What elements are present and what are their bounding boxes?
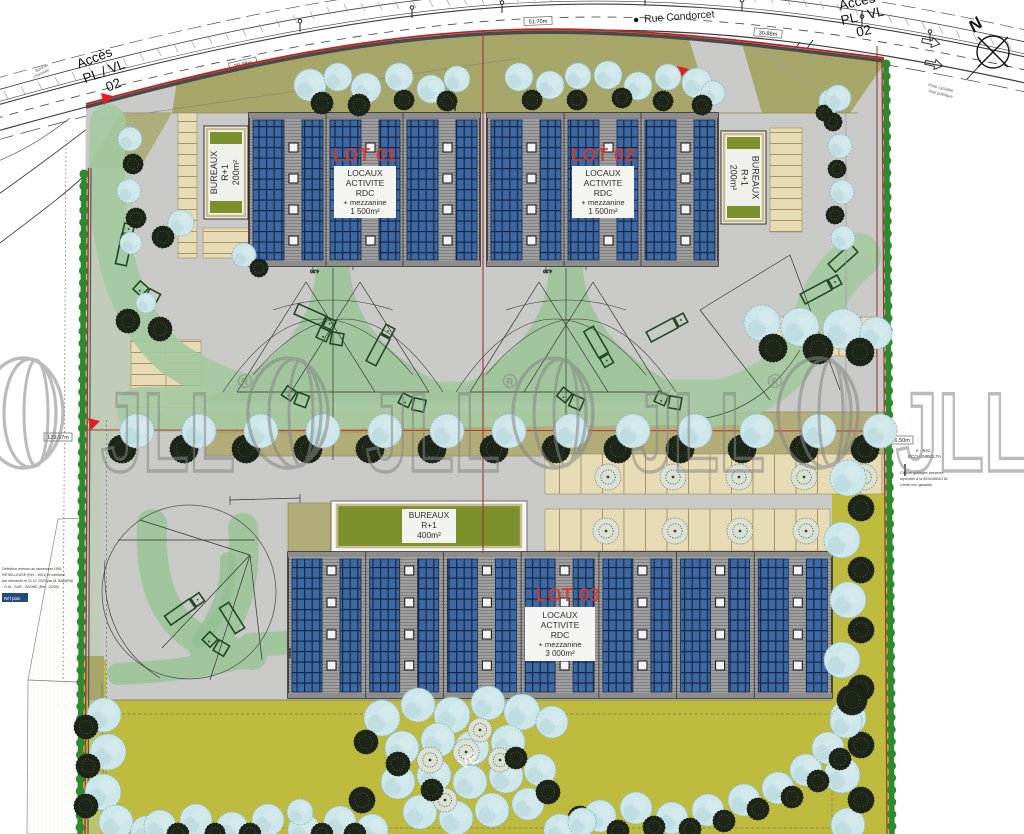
svg-text:R+1: R+1: [740, 169, 750, 186]
svg-text:RDC: RDC: [356, 188, 375, 198]
svg-text:JLL: JLL: [631, 370, 765, 495]
svg-text:Réf plan: Réf plan: [4, 596, 21, 601]
svg-text:ACTIVITE: ACTIVITE: [584, 178, 623, 188]
svg-text:R: R: [507, 377, 514, 387]
svg-text:RETAILLEUSE (Ref - 1001) et co: RETAILLEUSE (Ref - 1001) et confirmé: [2, 573, 65, 577]
svg-text:LOCAUX: LOCAUX: [585, 168, 621, 178]
svg-text:LOCAUX: LOCAUX: [347, 168, 383, 178]
svg-text:1 500m²: 1 500m²: [588, 207, 618, 216]
svg-text:3 000m²: 3 000m²: [545, 649, 575, 658]
svg-text:BUREAUX: BUREAUX: [751, 156, 761, 200]
svg-text:R+1: R+1: [421, 520, 437, 530]
svg-text:BUREAUX: BUREAUX: [409, 510, 450, 520]
svg-text:LOT 02: LOT 02: [571, 145, 635, 165]
svg-text:JLL: JLL: [101, 370, 235, 495]
svg-text:4.30: 4.30: [543, 269, 552, 274]
svg-text:200m²: 200m²: [231, 160, 241, 186]
svg-text:LOT 03: LOT 03: [536, 585, 600, 605]
svg-text:RDC: RDC: [594, 188, 613, 198]
svg-text:par demande le 21.07.2023 par: par demande le 21.07.2023 par M. BAVARIA: [2, 579, 74, 583]
svg-text:ACTIVITE: ACTIVITE: [346, 178, 385, 188]
svg-text:LOCAUX: LOCAUX: [542, 610, 578, 620]
svg-text:LOT 01: LOT 01: [333, 145, 397, 165]
svg-text:1 500m²: 1 500m²: [350, 207, 380, 216]
svg-text:JLL: JLL: [896, 370, 1024, 495]
svg-text:4.30: 4.30: [310, 269, 319, 274]
svg-text:JLL: JLL: [366, 370, 500, 495]
svg-text:+ mezzanine: + mezzanine: [581, 198, 624, 207]
svg-text:+ mezzanine: + mezzanine: [343, 198, 386, 207]
svg-text:RDC: RDC: [551, 630, 570, 640]
svg-text:Définition retenue au lancemen: Définition retenue au lancement 1991: [2, 567, 62, 571]
svg-text:200m²: 200m²: [729, 165, 739, 191]
svg-text:- O.M - SUR - SAONE (Ref - 22/: - O.M - SUR - SAONE (Ref - 22/05): [2, 585, 59, 589]
svg-text:ACTIVITE: ACTIVITE: [541, 620, 580, 630]
svg-text:400m²: 400m²: [417, 530, 441, 540]
svg-text:+ mezzanine: + mezzanine: [538, 640, 581, 649]
svg-text:R: R: [242, 377, 249, 387]
svg-text:R: R: [772, 377, 779, 387]
svg-text:R+1: R+1: [220, 164, 230, 181]
svg-text:51.70m: 51.70m: [529, 19, 548, 26]
svg-text:BUREAUX: BUREAUX: [209, 151, 219, 195]
